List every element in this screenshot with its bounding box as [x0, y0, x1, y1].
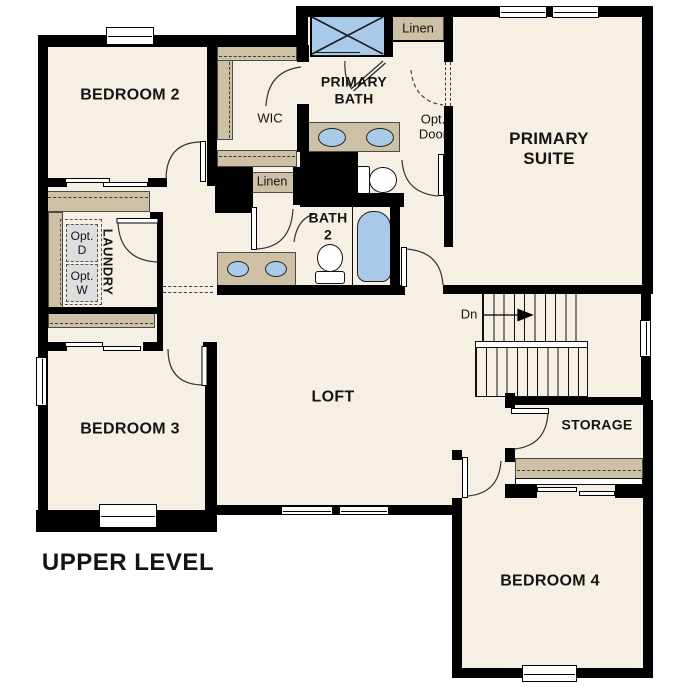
- window: [499, 6, 547, 18]
- toilet-bowl: [369, 167, 397, 193]
- wall: [157, 222, 163, 348]
- annotation-opt-washer: Opt. W: [65, 269, 99, 297]
- room-label-wic: WIC: [257, 110, 282, 125]
- wall: [207, 35, 217, 186]
- wic-shelf-top: [217, 45, 297, 61]
- sink: [227, 261, 249, 277]
- window: [106, 27, 154, 45]
- optional-door-dash: [445, 62, 446, 106]
- bedroom4-closet-shelf: [515, 458, 643, 480]
- wall: [215, 167, 253, 213]
- bedroom3-closet-shelf: [48, 313, 155, 328]
- wall: [385, 13, 393, 57]
- window: [522, 665, 577, 682]
- shelf-dash: [517, 470, 641, 471]
- wall: [148, 178, 167, 187]
- wall: [505, 484, 537, 498]
- sink: [318, 128, 346, 147]
- wall: [452, 450, 462, 460]
- room-label-storage: STORAGE: [561, 417, 632, 434]
- shower: [310, 15, 386, 57]
- stairs-upper-run: [482, 294, 586, 341]
- room-label-loft: LOFT: [312, 389, 355, 408]
- wall: [205, 342, 217, 532]
- room-label-primary-bath: PRIMARY BATH: [308, 73, 400, 106]
- wic-shelf-bottom: [217, 150, 297, 167]
- annotation-opt-door: Opt. Door: [411, 112, 455, 143]
- window: [36, 357, 47, 406]
- stairs-lower-run: [475, 347, 588, 397]
- shelf-dash: [50, 323, 153, 324]
- bedroom2-closet-shelf: [46, 191, 150, 212]
- ceiling-break-dash: [163, 286, 213, 287]
- wall: [505, 397, 643, 405]
- plan-title: UPPER LEVEL: [42, 549, 214, 577]
- wall: [38, 35, 308, 47]
- closet-label-linen-hall: Linen: [257, 175, 288, 190]
- wall: [48, 307, 157, 314]
- room-label-bedroom-4: BEDROOM 4: [500, 573, 600, 592]
- room-label-bath-2: BATH 2: [303, 209, 353, 242]
- wall: [297, 104, 309, 152]
- sliding-door: [103, 182, 148, 187]
- sliding-door: [103, 346, 141, 351]
- floor-plan: BEDROOM 2 WIC PRIMARY BATH Linen Opt. Do…: [0, 0, 687, 687]
- sliding-door: [579, 491, 615, 496]
- toilet-tank: [315, 271, 345, 284]
- wic-shelf-left: [217, 60, 233, 140]
- annotation-stairs-down: Dn: [461, 306, 478, 321]
- window: [552, 6, 599, 18]
- sliding-door: [65, 342, 103, 347]
- wall: [452, 498, 462, 678]
- room-label-laundry: LAUNDRY: [100, 229, 115, 296]
- wall: [505, 448, 515, 462]
- room-label-bedroom-3: BEDROOM 3: [80, 421, 180, 440]
- toilet-bowl: [317, 244, 343, 272]
- optional-door-dash: [450, 62, 451, 106]
- window: [99, 504, 157, 528]
- wall: [217, 285, 405, 295]
- sink: [265, 261, 287, 277]
- wall: [300, 152, 358, 207]
- wall: [444, 6, 453, 62]
- wall: [38, 35, 48, 532]
- wall: [641, 293, 651, 322]
- wall: [300, 6, 653, 17]
- wall: [38, 342, 67, 351]
- ceiling-break-dash: [163, 292, 213, 293]
- sliding-door: [537, 487, 577, 492]
- shelf-dash: [219, 156, 295, 157]
- annotation-opt-dryer: Opt. D: [65, 229, 99, 257]
- sink: [366, 128, 394, 147]
- wall: [642, 6, 653, 293]
- shelf-dash: [48, 197, 148, 198]
- wall: [390, 207, 400, 295]
- wall: [38, 178, 67, 187]
- shelf-dash: [219, 56, 295, 57]
- wall: [150, 212, 163, 222]
- room-label-primary-suite: PRIMARY SUITE: [494, 129, 604, 169]
- closet-label-linen-primary: Linen: [402, 20, 434, 35]
- window: [339, 506, 389, 515]
- window: [281, 506, 333, 515]
- bathtub-basin: [357, 211, 391, 282]
- wall: [297, 45, 309, 62]
- window: [640, 320, 651, 357]
- wall: [615, 484, 643, 498]
- wall: [393, 40, 444, 42]
- shelf-dash: [229, 62, 230, 138]
- wall: [443, 285, 653, 294]
- room-label-bedroom-2: BEDROOM 2: [80, 87, 180, 106]
- wall: [643, 400, 653, 678]
